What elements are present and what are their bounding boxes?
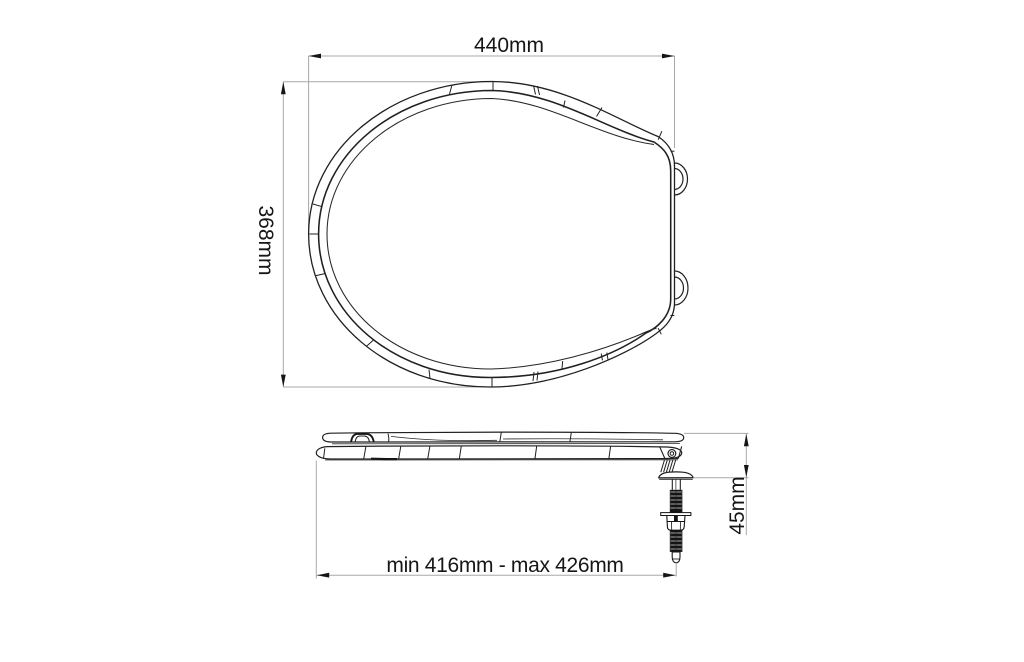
svg-text:440mm: 440mm xyxy=(474,34,544,57)
svg-text:min 416mm - max 426mm: min 416mm - max 426mm xyxy=(386,554,623,577)
svg-text:368mm: 368mm xyxy=(254,205,277,275)
svg-text:45mm: 45mm xyxy=(726,476,749,534)
